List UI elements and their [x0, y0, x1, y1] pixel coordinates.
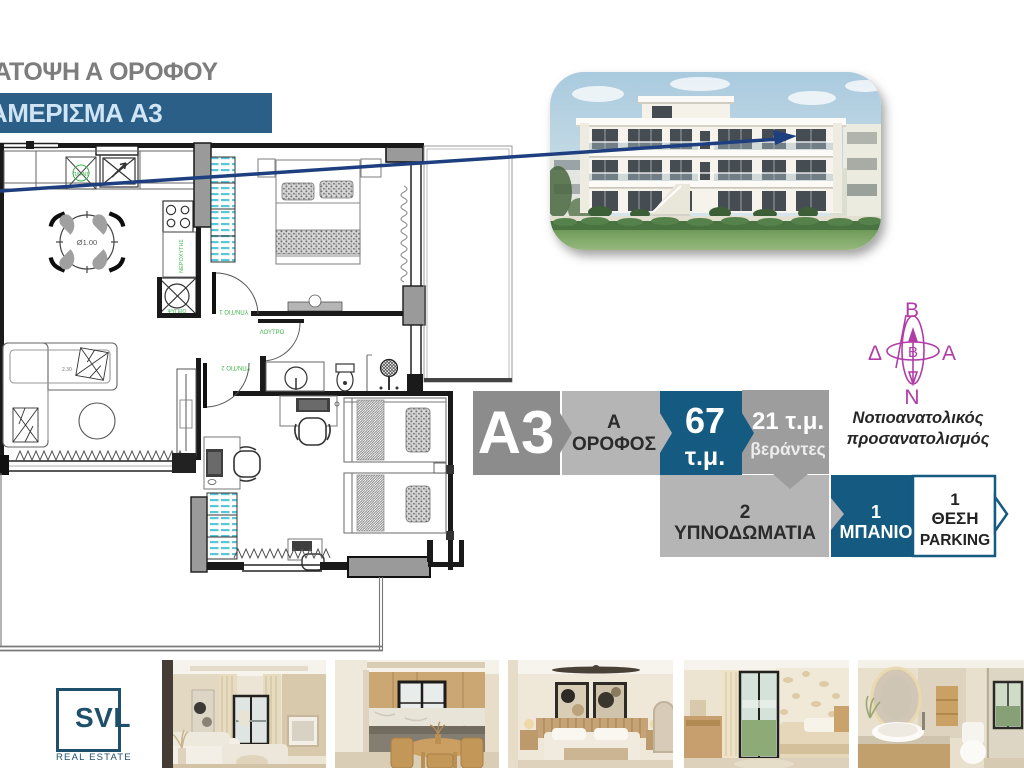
svg-text:ΠΛΥΝΤ: ΠΛΥΝΤ — [73, 172, 90, 178]
svg-text:τ.μ.: τ.μ. — [685, 443, 725, 471]
svg-text:ΛΟΥΤΡΟ: ΛΟΥΤΡΟ — [260, 330, 285, 336]
svg-text:B: B — [908, 344, 918, 361]
svg-text:1: 1 — [871, 502, 881, 522]
svg-text:ΥΠΝ/ΤΙΟ 2: ΥΠΝ/ΤΙΟ 2 — [221, 364, 251, 370]
svg-text:Ø1.00: Ø1.00 — [77, 238, 97, 247]
svg-text:A3: A3 — [478, 399, 555, 466]
svg-text:ΥΠΝΟΔΩΜΑΤΙΑ: ΥΠΝΟΔΩΜΑΤΙΑ — [674, 523, 816, 544]
svg-text:2.30: 2.30 — [62, 367, 72, 373]
svg-text:2: 2 — [740, 502, 751, 523]
svg-text:21 τ.μ.: 21 τ.μ. — [752, 408, 824, 435]
svg-text:PARKING: PARKING — [920, 532, 990, 549]
svg-text:ΜΠΑΝΙΟ: ΜΠΑΝΙΟ — [840, 522, 913, 542]
svg-text:67: 67 — [685, 400, 725, 441]
svg-text:ΘΕΣΗ: ΘΕΣΗ — [931, 509, 978, 528]
svg-text:ΝΕΡΟΧΥΤΗΣ: ΝΕΡΟΧΥΤΗΣ — [179, 239, 185, 273]
svg-text:B: B — [905, 299, 919, 322]
svg-text:βεράντες: βεράντες — [750, 439, 826, 459]
svg-text:Α: Α — [607, 412, 621, 433]
svg-text:ΟΡΟΦΟΣ: ΟΡΟΦΟΣ — [572, 434, 656, 455]
svg-text:ΥΠΝ/ΤΙΟ 1: ΥΠΝ/ΤΙΟ 1 — [219, 308, 249, 314]
svg-text:Δ: Δ — [868, 342, 882, 365]
svg-text:A: A — [942, 342, 956, 365]
svg-text:1: 1 — [950, 490, 959, 509]
